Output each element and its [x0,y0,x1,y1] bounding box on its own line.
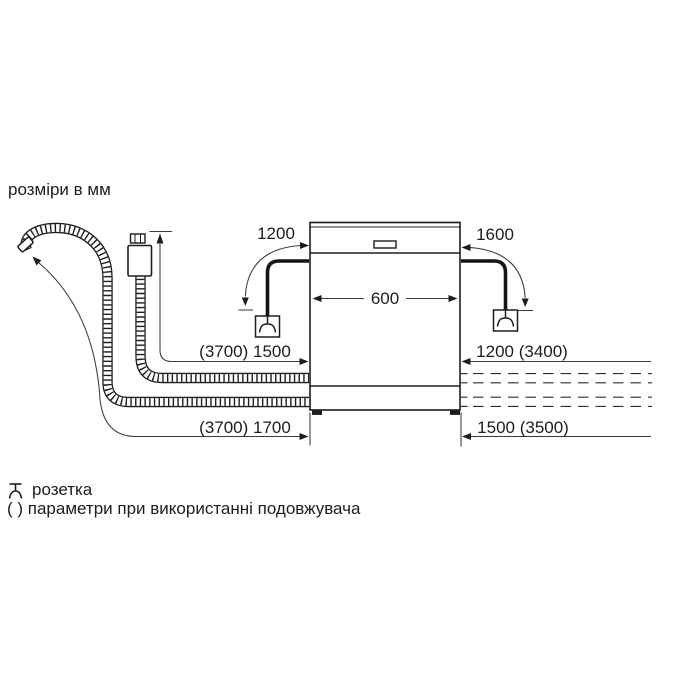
installation-diagram: розміри в мм 1200 1600 600 (3700) 1500 1… [0,0,700,700]
dim-label-appliance-width: 600 [368,290,402,307]
diagram-lineart [0,0,700,700]
appliance-foot-right [450,410,460,415]
legend-row-socket: розетка [7,480,360,499]
legend-extension-note: ( ) параметри при використанні подовжува… [7,499,360,518]
power-cord-right [461,261,506,310]
power-cord-left [268,261,310,316]
dim-label-power-cord-right: 1600 [473,226,517,243]
legend-row-extension: ( ) параметри при використанні подовжува… [7,499,360,518]
socket-icon-legend [8,481,25,501]
dim-label-right-lower: 1500 (3500) [474,419,572,436]
dim-label-drain-hose: (3700) 1700 [196,419,294,436]
legend-socket-label: розетка [32,480,92,499]
dimension-arc-1600 [462,244,534,311]
legend: розетка ( ) параметри при використанні п… [7,480,360,518]
drain-hose-end-cap [17,237,33,253]
page-title: розміри в мм [8,180,111,199]
hose-extension-dashed-lines [461,374,652,407]
dim-label-right-upper: 1200 (3400) [473,343,571,360]
dim-label-inlet-hose: (3700) 1500 [196,343,294,360]
control-display [374,241,396,248]
dim-label-power-cord-left: 1200 [254,225,298,242]
socket-icon-right [494,310,518,331]
appliance-foot-left [312,410,322,415]
dishwasher-front-outline [310,223,460,415]
aquastop-valve-icon [128,234,152,276]
socket-icon-left [256,316,280,337]
dimension-arc-1200 [239,242,310,310]
inlet-hose-icon [141,274,310,378]
